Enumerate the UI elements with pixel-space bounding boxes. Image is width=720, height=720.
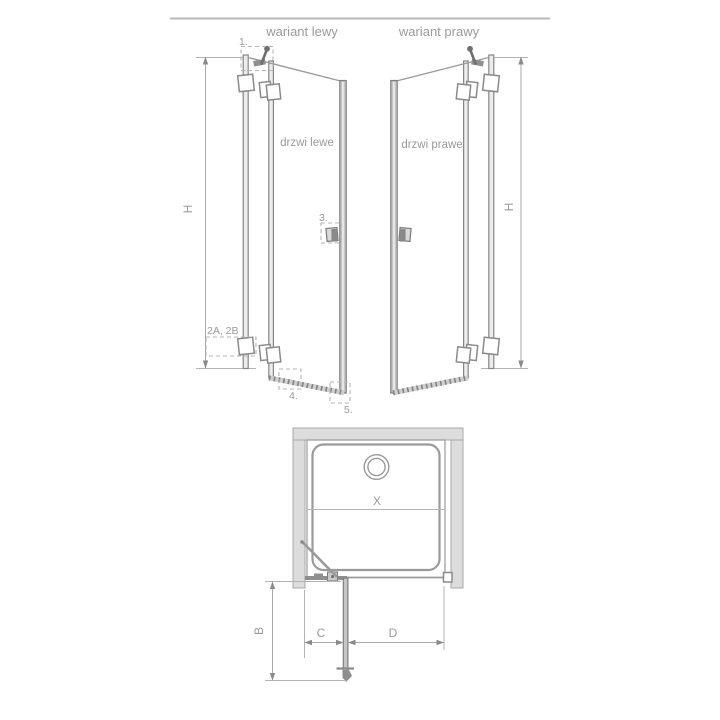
hinge-icon [266,347,280,363]
top-wall [293,428,463,440]
callout-4-label: 4. [289,390,298,402]
arrow-down-icon [203,361,208,369]
door-width-dimension: D [348,586,444,650]
hinge-side-profile-bar [269,61,274,378]
hinge-side-profile-bar [464,61,469,378]
plan-view-diagram: X B C [252,428,463,682]
hinge-icon [266,84,280,100]
door-width-dim-label: D [389,626,398,640]
left-variant-diagram: H [181,36,353,416]
hinge-icon [456,347,470,363]
hinge-icon [483,74,500,91]
right-variant-diagram: H dr [391,46,528,393]
callout-2-label: 2A, 2B [207,325,239,337]
top-pivot-hardware [253,46,270,67]
sill-bracket-icon [314,574,323,579]
arrow-up-icon [270,582,275,590]
height-dimension-right: H [481,57,528,369]
arrow-left-icon [305,640,313,645]
arrow-right-icon [336,640,344,645]
hinge-icon [483,337,500,354]
door-offset-dimension: C [305,590,344,658]
arrow-right-icon [437,640,445,645]
hinge-icon [238,74,255,91]
open-door-panel [343,578,348,678]
bottom-threshold [269,378,344,393]
bottom-threshold [393,378,468,393]
knob-face-icon [331,229,337,242]
wall-profile-bar [243,55,248,369]
top-pivot-hardware [467,46,484,67]
height-dim-label: H [502,203,516,212]
hinge-icon [456,84,470,100]
door-knob-right [399,228,411,242]
knob-face-icon [400,229,406,242]
arrow-down-icon [270,673,275,681]
inner-width-label: X [373,494,381,508]
arrow-left-icon [348,640,356,645]
pivot-knob-icon [467,46,473,52]
door-offset-dim-label: C [317,626,326,640]
arrow-down-icon [518,361,523,369]
height-dim-label: H [181,205,195,214]
door-swing-end [300,540,304,544]
right-wall [451,440,463,588]
depth-dimension: B [252,582,346,681]
door-label-left: drzwi lewe [280,137,334,149]
shower-door-drawing: wariant lewy wariant prawy H [0,0,720,720]
depth-dim-label: B [252,627,266,635]
wall-hinge-icon [444,573,453,583]
technical-drawing-page: wariant lewy wariant prawy H [0,0,720,720]
door-knob-left [326,228,338,242]
door-label-right: drzwi prawe [401,139,462,151]
left-wall [293,440,305,588]
hinge-icon [238,337,255,354]
pivot-dot-icon [331,575,334,578]
wall-profile-bar [489,55,494,369]
right-variant-title: wariant prawy [398,24,480,39]
callout-3-label: 3. [319,212,328,224]
callout-5-label: 5. [344,404,353,416]
left-variant-title: wariant lewy [265,24,338,39]
